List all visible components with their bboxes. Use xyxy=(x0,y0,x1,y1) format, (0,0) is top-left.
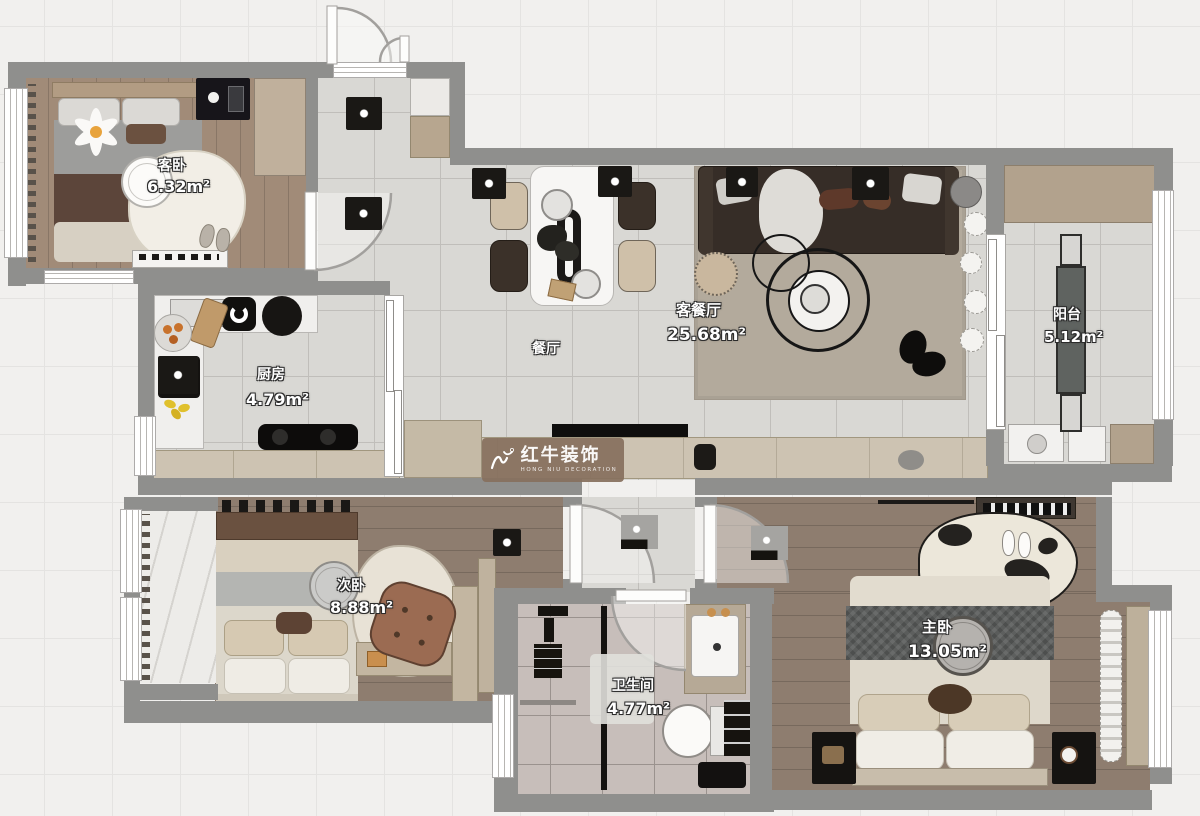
room-area-kitchen: 4.79m² xyxy=(246,390,309,409)
ceiling-light xyxy=(346,97,382,130)
entry-door-leaf xyxy=(327,6,337,64)
room-label-bathroom: 卫生间 xyxy=(612,675,654,695)
ceiling-light xyxy=(345,197,382,230)
brand-text-block: 红牛装饰 HONG NIU DECORATION xyxy=(521,447,618,473)
bathroom-door-leaf xyxy=(616,590,686,601)
hallway-light xyxy=(751,526,788,560)
floor-plan-canvas: 客卧 6.32m² 厨房 4.79m² 餐厅 客餐厅 25.68m² 阳台 5.… xyxy=(0,0,1200,816)
room-label-guest-bedroom: 客卧 xyxy=(158,155,186,175)
watermark: 红牛装饰 HONG NIU DECORATION xyxy=(482,438,624,482)
ceiling-light xyxy=(726,167,758,197)
room-area-balcony: 5.12m² xyxy=(1044,328,1103,346)
entry-door2-leaf xyxy=(400,36,409,62)
room-label-balcony: 阳台 xyxy=(1053,304,1081,324)
kitchen-light xyxy=(158,356,198,394)
room-area-bathroom: 4.77m² xyxy=(607,699,670,718)
hallway-light xyxy=(621,515,658,549)
room-area-living-dining: 25.68m² xyxy=(667,325,746,345)
second-bedroom-door-leaf xyxy=(570,505,582,583)
brand-bull-icon xyxy=(489,447,515,473)
brand-name: 红牛装饰 xyxy=(521,447,618,465)
room-area-master-bedroom: 13.05m² xyxy=(908,642,987,662)
room-label-kitchen: 厨房 xyxy=(257,364,285,384)
room-area-second-bedroom: 8.88m² xyxy=(330,598,393,617)
room-label-second-bedroom: 次卧 xyxy=(337,575,365,595)
balcony-fixture-bottom xyxy=(1060,394,1082,432)
ceiling-light xyxy=(852,167,889,200)
brand-subtitle: HONG NIU DECORATION xyxy=(521,467,618,473)
balcony-fixture-top xyxy=(1060,234,1082,266)
pendant-light xyxy=(472,168,506,199)
room-label-master-bedroom: 主卧 xyxy=(922,616,952,637)
room-area-guest-bedroom: 6.32m² xyxy=(147,177,210,196)
room-label-living-dining: 客餐厅 xyxy=(676,299,721,320)
room-label-dining: 餐厅 xyxy=(532,338,560,358)
hallway-light-small xyxy=(493,529,521,556)
guest-door-leaf xyxy=(305,192,316,270)
master-door-leaf xyxy=(704,505,716,583)
pendant-light xyxy=(598,166,632,197)
